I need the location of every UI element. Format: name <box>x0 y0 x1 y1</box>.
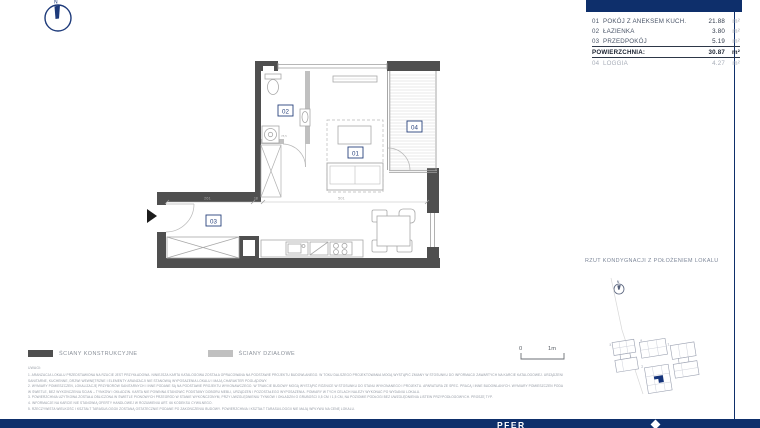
walls-legend: ŚCIANY KONSTRUKCYJNE ŚCIANY DZIAŁOWE <box>28 350 295 357</box>
building-label: 1 <box>667 342 670 346</box>
building-label: 3 <box>609 343 612 347</box>
area-unit: m² <box>725 18 740 25</box>
room-name: LOGGIA <box>603 60 701 67</box>
room-number: 04 <box>592 60 603 67</box>
area-unit: m² <box>725 60 740 67</box>
notes-heading: UWAGI: <box>28 366 42 370</box>
room-number: 02 <box>592 28 603 35</box>
header-bar <box>586 0 742 12</box>
brand-logo-text: PFER <box>497 420 526 428</box>
scale-1m-label: 1m <box>548 346 556 352</box>
site-boundary-line <box>611 278 643 394</box>
site-plan-title: RZUT KONDYGNACJI Z POŁOŻENIEM LOKALU <box>585 258 719 264</box>
room-area: 3.80 <box>701 28 725 35</box>
north-compass-icon: N <box>40 0 80 38</box>
table-row: 03 PRZEDPOKÓJ 5.19 m² <box>592 36 740 46</box>
scale-zero-label: 0 <box>519 346 522 352</box>
dimension-chain: 261 18 501 <box>165 196 429 205</box>
room-label-04: 04 <box>411 124 418 131</box>
wardrobe-icon <box>167 237 239 258</box>
floorplan-card: { "header": { "bar_color": "#0e2f6b" }, … <box>0 0 760 428</box>
coffee-table-icon <box>338 126 371 144</box>
area-unit: m² <box>725 38 740 45</box>
room-area: 21.88 <box>701 18 725 25</box>
total-label: POWIERZCHNIA: <box>592 49 701 56</box>
building-4 <box>639 338 667 358</box>
note-line: 1. ARANŻACJA LOKALU PRZEDSTAWIONA NA RZU… <box>28 373 563 379</box>
entrance-door-swing <box>166 204 194 232</box>
area-unit: m² <box>725 28 740 35</box>
table-icon <box>377 216 410 246</box>
footer-bar: PFER <box>0 419 760 428</box>
area-table: 01 POKÓJ Z ANEKSEM KUCH. 21.88 m² 02 ŁAZ… <box>592 16 740 68</box>
living-room-furniture <box>327 76 383 192</box>
building-1 <box>670 342 699 378</box>
scale-bar: 0 1m <box>512 340 572 364</box>
toilet-icon <box>265 74 281 79</box>
area-unit: m² <box>725 49 740 56</box>
bathroom-door-swing <box>283 144 306 167</box>
room-name: POKÓJ Z ANEKSEM KUCH. <box>603 18 701 25</box>
total-area-row: POWIERZCHNIA: 30.87 m² <box>592 46 740 58</box>
shaft <box>261 145 281 197</box>
table-row: 02 ŁAZIENKA 3.80 m² <box>592 26 740 36</box>
floor-plan: 78,5 <box>140 48 485 308</box>
site-buildings: 3 4 1 2 <box>609 330 701 398</box>
note-line: 5. RZECZYWISTA WIELKOŚĆ I KSZTAŁT TARASU… <box>28 407 563 413</box>
note-line: 2. WYMIARY POMIESZCZEŃ, LOKALIZACJĘ PRZY… <box>28 384 563 390</box>
dining-set <box>372 209 415 252</box>
room-label-03: 03 <box>210 218 217 225</box>
room-number: 01 <box>592 18 603 25</box>
room-name: ŁAZIENKA <box>603 28 701 35</box>
kitchen-counter <box>261 240 363 257</box>
building-3 <box>612 339 638 372</box>
building-label: 2 <box>641 365 644 369</box>
building-2 <box>644 364 672 393</box>
structural-wall-label: ŚCIANY KONSTRUKCYJNE <box>59 351 138 357</box>
room-label-02: 02 <box>282 108 289 115</box>
room-label-01: 01 <box>352 150 359 157</box>
window-top <box>278 63 387 70</box>
site-compass-icon: N <box>614 280 624 294</box>
toilet-icon <box>268 80 279 95</box>
entrance-arrow-icon <box>147 209 157 223</box>
compass-needle <box>55 5 61 19</box>
site-plan: N <box>580 270 750 418</box>
site-north-label: N <box>617 280 620 284</box>
partition-wall-label: ŚCIANY DZIAŁOWE <box>239 351 296 357</box>
partition-wall-swatch <box>208 350 233 357</box>
structural-wall-swatch <box>28 350 53 357</box>
total-value: 30.87 <box>701 49 725 56</box>
brand-logo: PFER <box>497 420 526 428</box>
building-label: 4 <box>640 338 643 342</box>
room-number: 03 <box>592 38 603 45</box>
dim-hall: 261 <box>204 196 211 201</box>
notes-block: 1. ARANŻACJA LOKALU PRZEDSTAWIONA NA RZU… <box>28 373 563 412</box>
table-row: 01 POKÓJ Z ANEKSEM KUCH. 21.88 m² <box>592 16 740 26</box>
loggia-row: 04 LOGGIA 4.27 m² <box>592 58 740 68</box>
dim-washer: 78,5 <box>281 134 287 138</box>
window-right <box>429 213 437 247</box>
dim-wall: 18 <box>254 197 258 201</box>
dim-room: 501 <box>338 196 345 201</box>
brand-glyph-icon <box>651 420 661 428</box>
room-name: PRZEDPOKÓJ <box>603 38 701 45</box>
room-area: 4.27 <box>701 60 725 67</box>
room-area: 5.19 <box>701 38 725 45</box>
